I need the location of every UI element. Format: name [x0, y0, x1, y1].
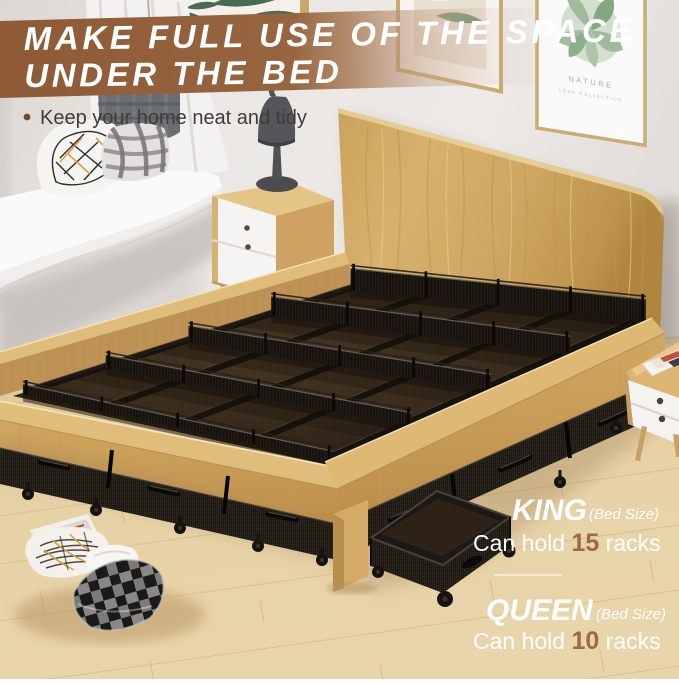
svg-text:(Bed Size): (Bed Size): [589, 506, 659, 523]
svg-text:Keep your home neat and tidy: Keep your home neat and tidy: [40, 107, 307, 129]
svg-text:QUEEN: QUEEN: [486, 594, 594, 627]
svg-text:Can hold 15 racks: Can hold 15 racks: [473, 529, 661, 557]
svg-text:UNDER THE BED: UNDER THE BED: [24, 53, 343, 94]
svg-text:KING: KING: [512, 494, 587, 527]
svg-text:(Bed Size): (Bed Size): [596, 606, 666, 623]
svg-text:Can hold 10 racks: Can hold 10 racks: [473, 627, 661, 655]
